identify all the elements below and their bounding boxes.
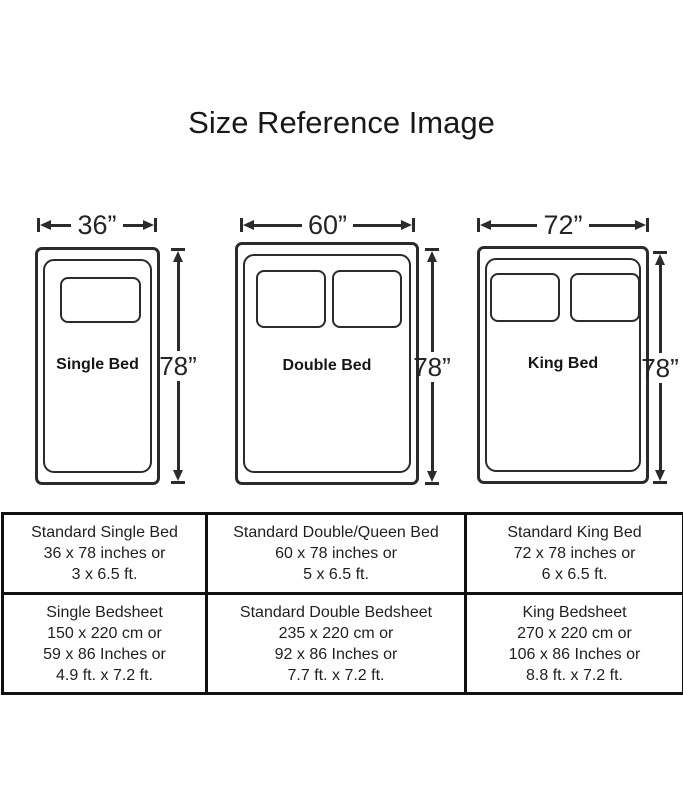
cell-line: Standard Double/Queen Bed [210, 522, 462, 543]
width-arrow: 72” [477, 216, 649, 234]
table-cell-double-bedsheet: Standard Double Bedsheet 235 x 220 cm or… [207, 594, 466, 694]
page-title: Size Reference Image [0, 104, 683, 142]
dimension-line [431, 262, 434, 352]
height-arrow: 78” [638, 251, 682, 484]
arrowhead-right-icon [401, 220, 412, 230]
cell-line: Single Bedsheet [6, 602, 203, 623]
dimension-tick [412, 218, 415, 232]
width-arrow: 60” [240, 216, 415, 234]
cell-line: 36 x 78 inches or [6, 543, 203, 564]
bed-figure-king: 72” King Bed 78” [477, 214, 683, 488]
bed-outline: Single Bed [35, 247, 160, 485]
cell-line: 5 x 6.5 ft. [210, 564, 462, 585]
dimension-tick [646, 218, 649, 232]
cell-line: 60 x 78 inches or [210, 543, 462, 564]
dimension-tick [154, 218, 157, 232]
width-dim-label: 72” [537, 212, 588, 239]
dimension-line [353, 224, 401, 227]
cell-line: 92 x 86 Inches or [210, 644, 462, 665]
dimension-line [177, 381, 180, 470]
cell-line: 150 x 220 cm or [6, 623, 203, 644]
height-dim-label: 78” [641, 353, 679, 383]
cell-line: Standard King Bed [469, 522, 680, 543]
cell-line: 270 x 220 cm or [469, 623, 680, 644]
table-cell-single-bedsheet: Single Bedsheet 150 x 220 cm or 59 x 86 … [3, 594, 207, 694]
bed-figure-single: 36” Single Bed 78” [35, 214, 205, 488]
size-table: Standard Single Bed 36 x 78 inches or 3 … [1, 512, 683, 695]
cell-line: 7.7 ft. x 7.2 ft. [210, 665, 462, 686]
cell-line: 106 x 86 Inches or [469, 644, 680, 665]
arrowhead-left-icon [480, 220, 491, 230]
dimension-line [254, 224, 302, 227]
pillow [490, 273, 560, 322]
bed-name-label: King Bed [480, 355, 646, 373]
cell-line: 72 x 78 inches or [469, 543, 680, 564]
table-cell-standard-double-bed: Standard Double/Queen Bed 60 x 78 inches… [207, 514, 466, 594]
width-dim-label: 60” [302, 212, 353, 239]
bed-outline: King Bed [477, 246, 649, 484]
size-reference-page: Size Reference Image 36” Single Bed 78” [0, 0, 683, 800]
width-dim-label: 36” [71, 212, 122, 239]
height-dim-label: 78” [159, 351, 197, 381]
cell-line: 8.8 ft. x 7.2 ft. [469, 665, 680, 686]
arrowhead-up-icon [655, 254, 665, 265]
dimension-tick [171, 481, 185, 484]
bed-outline: Double Bed [235, 242, 419, 485]
pillow [256, 270, 326, 328]
cell-line: 3 x 6.5 ft. [6, 564, 203, 585]
cell-line: 6 x 6.5 ft. [469, 564, 680, 585]
cell-line: 59 x 86 Inches or [6, 644, 203, 665]
dimension-tick [653, 481, 667, 484]
cell-line: Standard Double Bedsheet [210, 602, 462, 623]
arrowhead-left-icon [40, 220, 51, 230]
table-cell-king-bedsheet: King Bedsheet 270 x 220 cm or 106 x 86 I… [466, 594, 683, 694]
dimension-line [491, 224, 537, 227]
cell-line: Standard Single Bed [6, 522, 203, 543]
bed-name-label: Single Bed [38, 356, 157, 374]
cell-line: 4.9 ft. x 7.2 ft. [6, 665, 203, 686]
width-arrow: 36” [37, 216, 157, 234]
height-dim-label: 78” [413, 352, 451, 382]
table-row-standard-beds: Standard Single Bed 36 x 78 inches or 3 … [3, 514, 683, 594]
table-cell-standard-single-bed: Standard Single Bed 36 x 78 inches or 3 … [3, 514, 207, 594]
dimension-line [123, 224, 143, 227]
arrowhead-left-icon [243, 220, 254, 230]
dimension-line [589, 224, 635, 227]
arrowhead-right-icon [143, 220, 154, 230]
height-arrow: 78” [156, 248, 200, 484]
arrowhead-down-icon [655, 470, 665, 481]
bed-name-label: Double Bed [238, 357, 416, 375]
arrowhead-up-icon [427, 251, 437, 262]
pillow [332, 270, 402, 328]
arrowhead-down-icon [173, 470, 183, 481]
dimension-line [431, 382, 434, 472]
pillow [570, 273, 640, 322]
cell-line: King Bedsheet [469, 602, 680, 623]
table-row-bedsheets: Single Bedsheet 150 x 220 cm or 59 x 86 … [3, 594, 683, 694]
bed-figure-double: 60” Double Bed 78” [235, 214, 455, 488]
pillow [60, 277, 141, 323]
arrowhead-up-icon [173, 251, 183, 262]
table-cell-standard-king-bed: Standard King Bed 72 x 78 inches or 6 x … [466, 514, 683, 594]
dimension-line [659, 265, 662, 353]
dimension-line [659, 383, 662, 471]
height-arrow: 78” [410, 248, 454, 485]
dimension-line [51, 224, 71, 227]
cell-line: 235 x 220 cm or [210, 623, 462, 644]
dimension-tick [425, 482, 439, 485]
arrowhead-right-icon [635, 220, 646, 230]
dimension-line [177, 262, 180, 351]
arrowhead-down-icon [427, 471, 437, 482]
